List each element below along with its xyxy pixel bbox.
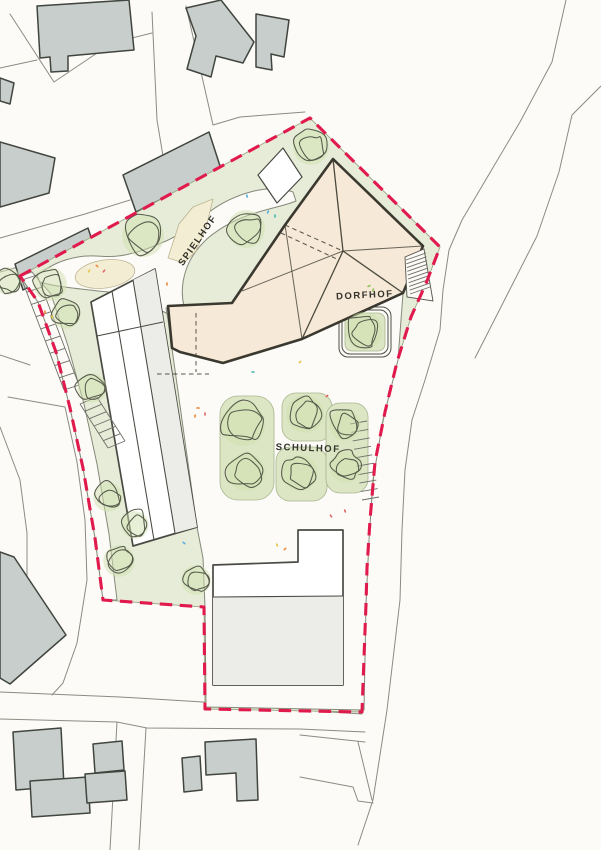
site-plan-drawing: SPIELHOF DORFHOF SCHULHOF <box>0 0 601 850</box>
site-plan-page: SPIELHOF DORFHOF SCHULHOF <box>0 0 601 850</box>
confetti-speck <box>274 214 276 218</box>
tree <box>103 545 135 577</box>
tree <box>181 565 210 594</box>
tree <box>293 129 329 165</box>
confetti-speck <box>196 407 200 409</box>
tree <box>345 312 383 350</box>
tree <box>286 395 324 433</box>
tree <box>329 409 361 441</box>
label-schulhof: SCHULHOF <box>276 442 341 455</box>
